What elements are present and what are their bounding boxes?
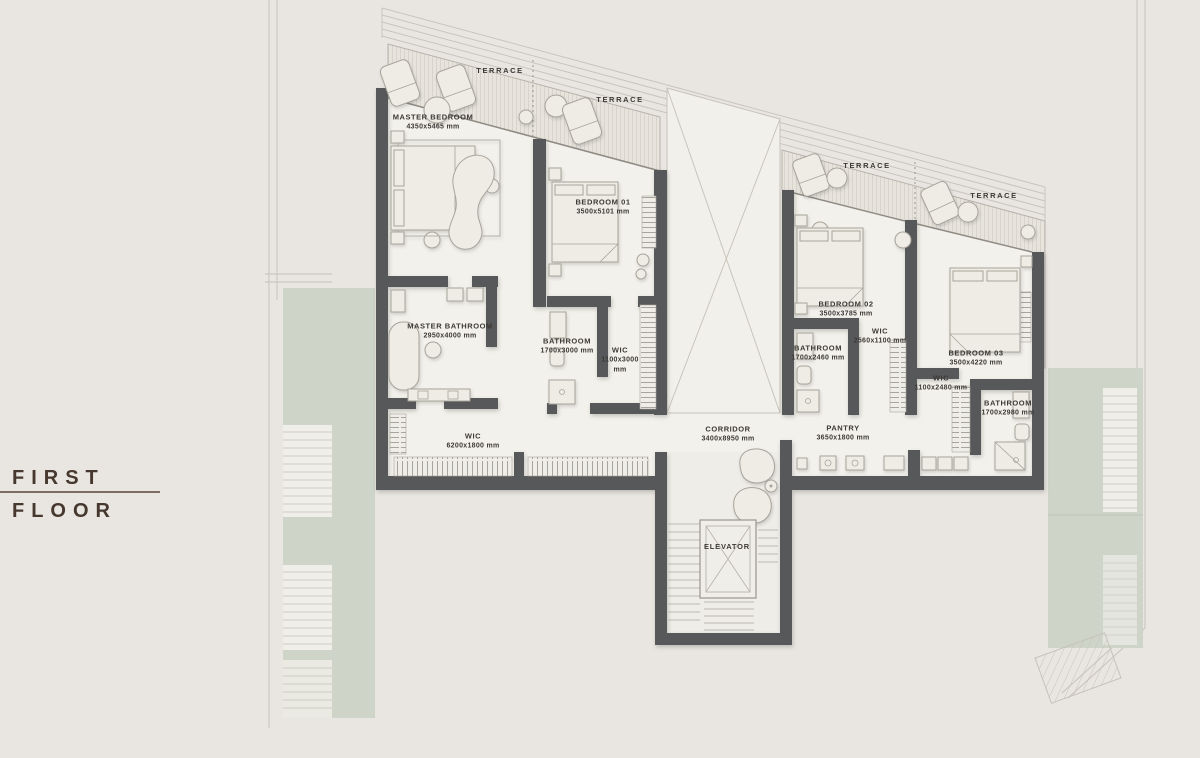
room-dims: 1100x2480 mm (915, 383, 968, 393)
floor-title: FIRST FLOOR (12, 468, 117, 521)
room-name: BATHROOM (543, 336, 591, 345)
room-name: WIC (465, 431, 481, 440)
room-dims: 1700x2460 mm (791, 353, 844, 363)
floor-title-line2: FLOOR (12, 501, 117, 521)
room-label-bedroom-01: BEDROOM 01 3500x5101 mm (575, 186, 630, 227)
room-label-bathroom-03: BATHROOM 1700x2980 mm (981, 387, 1034, 428)
void-cross (667, 88, 780, 413)
room-name: BEDROOM 02 (818, 299, 873, 308)
room-label-bathroom-02: BATHROOM 1700x2460 mm (791, 332, 844, 373)
room-label-wic-main: WIC 6200x1800 mm (446, 420, 499, 461)
floor-plan-drawing (0, 0, 1200, 758)
terrace-label-4: TERRACE (970, 191, 1017, 202)
elevator-label: ELEVATOR (704, 542, 750, 553)
room-dims: 1700x3000 mm (540, 346, 593, 356)
room-label-wic-03: WIC 1100x2480 mm (915, 362, 968, 403)
terrace-label-3: TERRACE (843, 161, 890, 172)
room-name: MASTER BATHROOM (407, 321, 493, 330)
room-label-wic-01: WIC 1100x3000 mm (601, 334, 638, 385)
room-name: BATHROOM (984, 398, 1032, 407)
room-name: WIC (933, 373, 949, 382)
room-dims: 1700x2980 mm (981, 408, 1034, 418)
room-name: WIC (872, 326, 888, 335)
room-dims: 2560x1100 mm (854, 336, 907, 346)
room-label-bathroom-01: BATHROOM 1700x3000 mm (540, 325, 593, 366)
floor-title-line1: FIRST (12, 468, 117, 488)
room-label-master-bedroom: MASTER BEDROOM 4350x5465 mm (393, 101, 474, 142)
room-label-wic-02: WIC 2560x1100 mm (854, 315, 907, 356)
room-label-corridor: CORRIDOR 3400x8950 mm (701, 413, 754, 454)
elevator-shaft (700, 520, 756, 598)
room-dims: 3650x1800 mm (816, 433, 869, 443)
room-dims: 4350x5465 mm (393, 122, 474, 132)
room-name: CORRIDOR (705, 424, 750, 433)
room-name: WIC (612, 345, 628, 354)
room-name: PANTRY (826, 423, 859, 432)
room-name: BEDROOM 03 (948, 348, 1003, 357)
room-dims: 1100x3000 mm (601, 355, 638, 375)
greenery-left (283, 288, 375, 718)
room-dims: 6200x1800 mm (446, 441, 499, 451)
room-name: MASTER BEDROOM (393, 112, 474, 121)
room-label-master-bathroom: MASTER BATHROOM 2950x4000 mm (407, 310, 493, 351)
terrace-label-1: TERRACE (476, 66, 523, 77)
terrace-label-2: TERRACE (596, 95, 643, 106)
floor-plan-page: TERRACE TERRACE TERRACE TERRACE MASTER B… (0, 0, 1200, 758)
trellis-hatch (1035, 633, 1121, 703)
greenery-right (1048, 368, 1143, 648)
floor-title-divider (0, 491, 160, 493)
room-name: BATHROOM (794, 343, 842, 352)
room-dims: 3400x8950 mm (701, 434, 754, 444)
room-name: BEDROOM 01 (575, 197, 630, 206)
room-label-pantry: PANTRY 3650x1800 mm (816, 412, 869, 453)
room-dims: 2950x4000 mm (407, 331, 493, 341)
room-dims: 3500x5101 mm (575, 207, 630, 217)
